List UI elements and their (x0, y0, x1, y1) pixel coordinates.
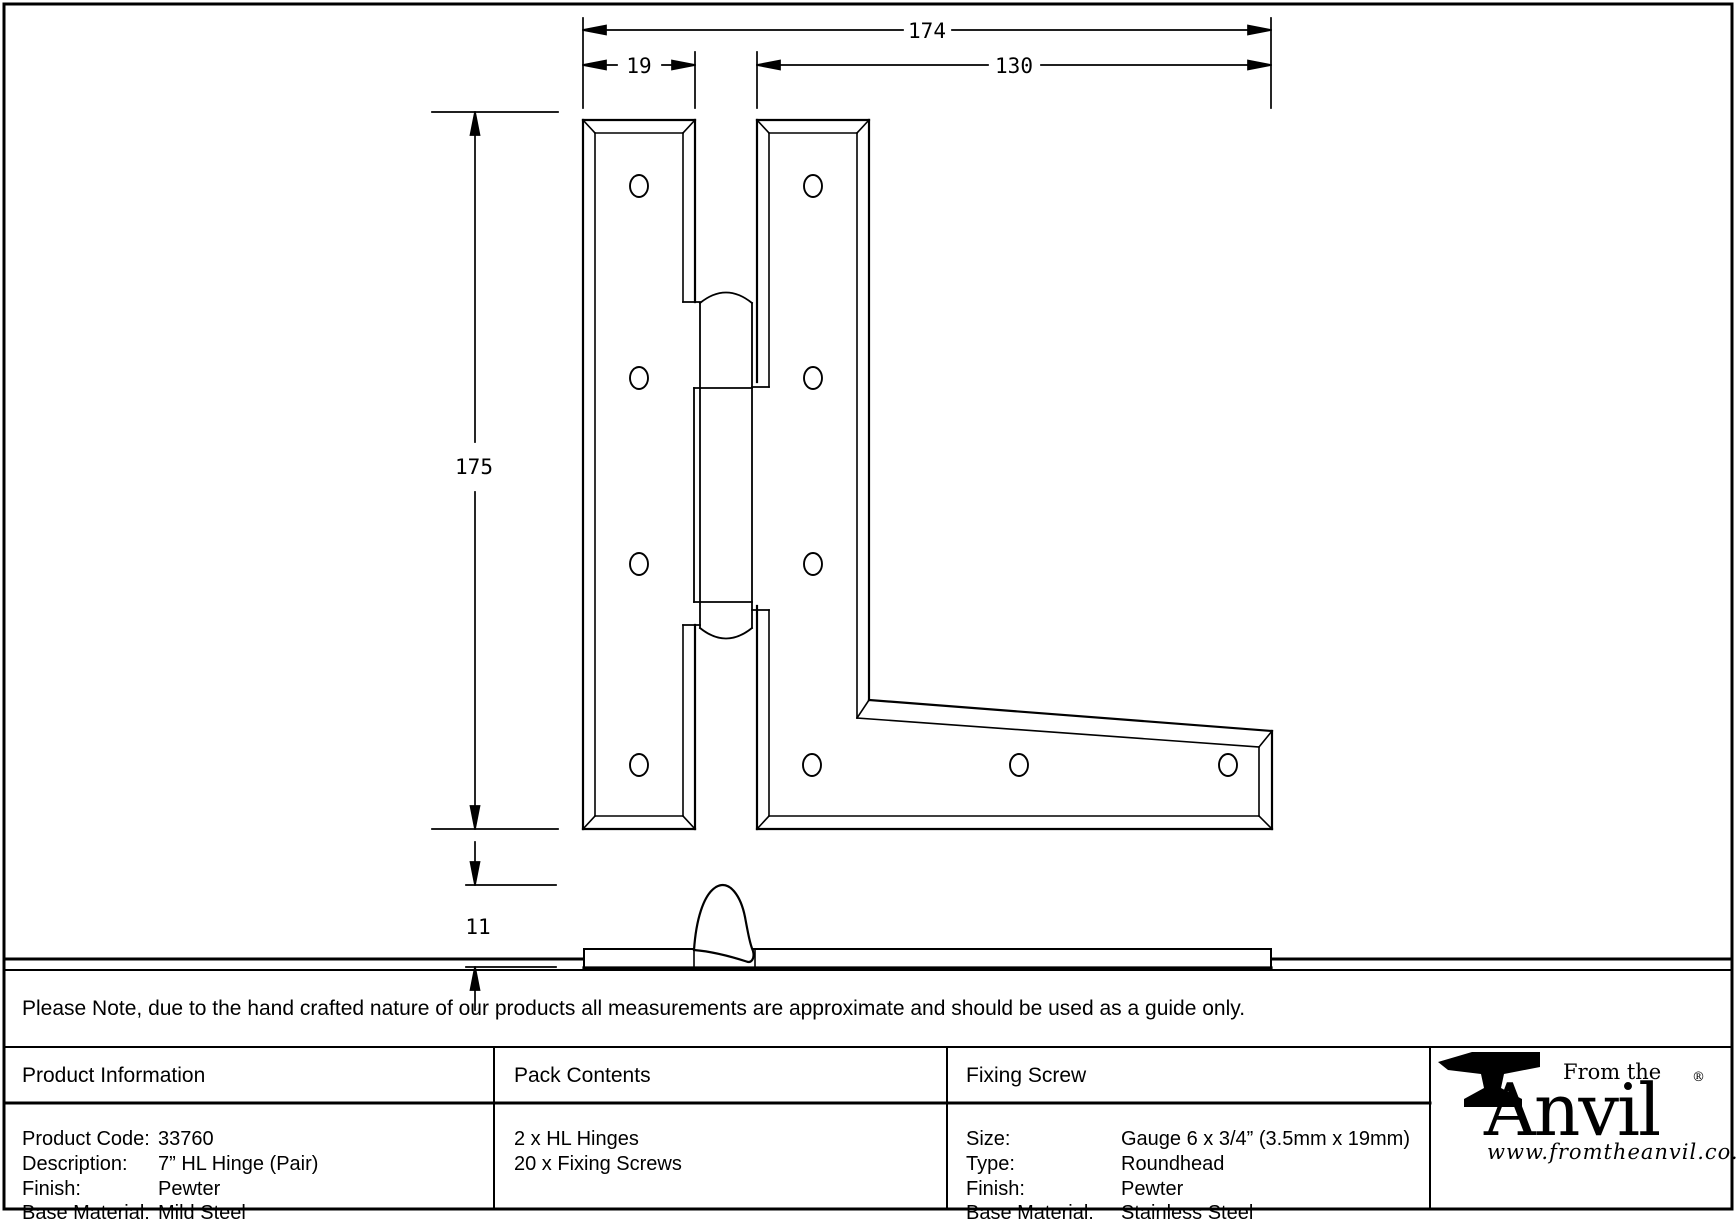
dim-label-130: 130 (995, 54, 1033, 78)
screw-hole (630, 553, 648, 575)
arrowhead-down-icon (471, 806, 480, 829)
pack-contents-item: 20 x Fixing Screws (514, 1153, 682, 1176)
side-profile-view (584, 885, 1271, 968)
row-label: Description: (22, 1153, 128, 1175)
screw-hole (804, 367, 822, 389)
arrowhead-right-icon (1248, 61, 1271, 70)
row-value: Roundhead (1121, 1153, 1224, 1176)
row-label: Finish: (22, 1178, 81, 1200)
arrowhead-up-icon (471, 112, 480, 135)
screw-hole (630, 175, 648, 197)
table-row: Product Code: 33760 (22, 1128, 150, 1151)
screw-hole (1010, 754, 1028, 776)
arrowhead-right-icon (672, 61, 695, 70)
screw-hole (1219, 754, 1237, 776)
row-label: Size: (966, 1128, 1010, 1150)
table-row: Description: 7” HL Hinge (Pair) (22, 1153, 128, 1176)
header-pack-contents: Pack Contents (514, 1064, 651, 1088)
arrowhead-right-icon (1248, 26, 1271, 35)
left-plate (583, 120, 695, 829)
dim-label-174: 174 (908, 19, 946, 43)
dimension-height (432, 112, 558, 829)
row-value: 33760 (158, 1128, 214, 1151)
pin-top-dome (700, 293, 752, 304)
table-row: Base Material: Mild Steel (22, 1202, 150, 1220)
registered-trademark-icon: ® (1692, 1070, 1705, 1085)
row-value: Mild Steel (158, 1202, 246, 1220)
row-label: Finish: (966, 1178, 1025, 1200)
header-fixing-screw: Fixing Screw (966, 1064, 1086, 1088)
hinge-technical-drawing: 174 19 130 175 11 (0, 0, 1736, 1220)
screw-hole (803, 754, 821, 776)
table-row: Finish: Pewter (966, 1178, 1025, 1201)
screw-holes (630, 175, 1237, 776)
left-plate-bevel (583, 120, 695, 829)
arrowhead-down-icon (471, 862, 480, 885)
spec-sheet-page: 174 19 130 175 11 Please Note, due to th… (0, 0, 1736, 1220)
row-value: Pewter (158, 1178, 220, 1201)
dim-label-11: 11 (465, 915, 490, 939)
row-label: Type: (966, 1153, 1015, 1175)
measurement-note: Please Note, due to the hand crafted nat… (22, 997, 1245, 1021)
header-product-information: Product Information (22, 1064, 205, 1088)
screw-hole (804, 553, 822, 575)
table-row: Finish: Pewter (22, 1178, 81, 1201)
right-l-plate-bevel (757, 120, 1272, 829)
table-row: Base Material: Stainless Steel (966, 1202, 1094, 1220)
dim-label-175: 175 (455, 455, 493, 479)
knuckle-side-bump (694, 885, 754, 962)
pin-bottom-arc (700, 628, 752, 639)
pack-contents-item: 2 x HL Hinges (514, 1128, 639, 1151)
right-l-plate (757, 120, 1272, 829)
screw-hole (630, 754, 648, 776)
row-value: Gauge 6 x 3/4” (3.5mm x 19mm) (1121, 1128, 1410, 1151)
row-label: Product Code: (22, 1128, 150, 1150)
row-label: Base Material: (22, 1202, 150, 1220)
table-row: Size: Gauge 6 x 3/4” (3.5mm x 19mm) (966, 1128, 1010, 1151)
arrowhead-left-icon (583, 26, 606, 35)
screw-hole (804, 175, 822, 197)
screw-hole (630, 367, 648, 389)
row-value: Pewter (1121, 1178, 1183, 1201)
row-value: 7” HL Hinge (Pair) (158, 1153, 318, 1176)
table-row: Type: Roundhead (966, 1153, 1015, 1176)
brand-website: www.fromtheanvil.co.uk (1487, 1140, 1736, 1164)
row-label: Base Material: (966, 1202, 1094, 1220)
brand-name: Anvil (1484, 1074, 1659, 1146)
arrowhead-left-icon (583, 61, 606, 70)
arrowhead-left-icon (757, 61, 780, 70)
row-value: Stainless Steel (1121, 1202, 1253, 1220)
dim-label-19: 19 (626, 54, 651, 78)
